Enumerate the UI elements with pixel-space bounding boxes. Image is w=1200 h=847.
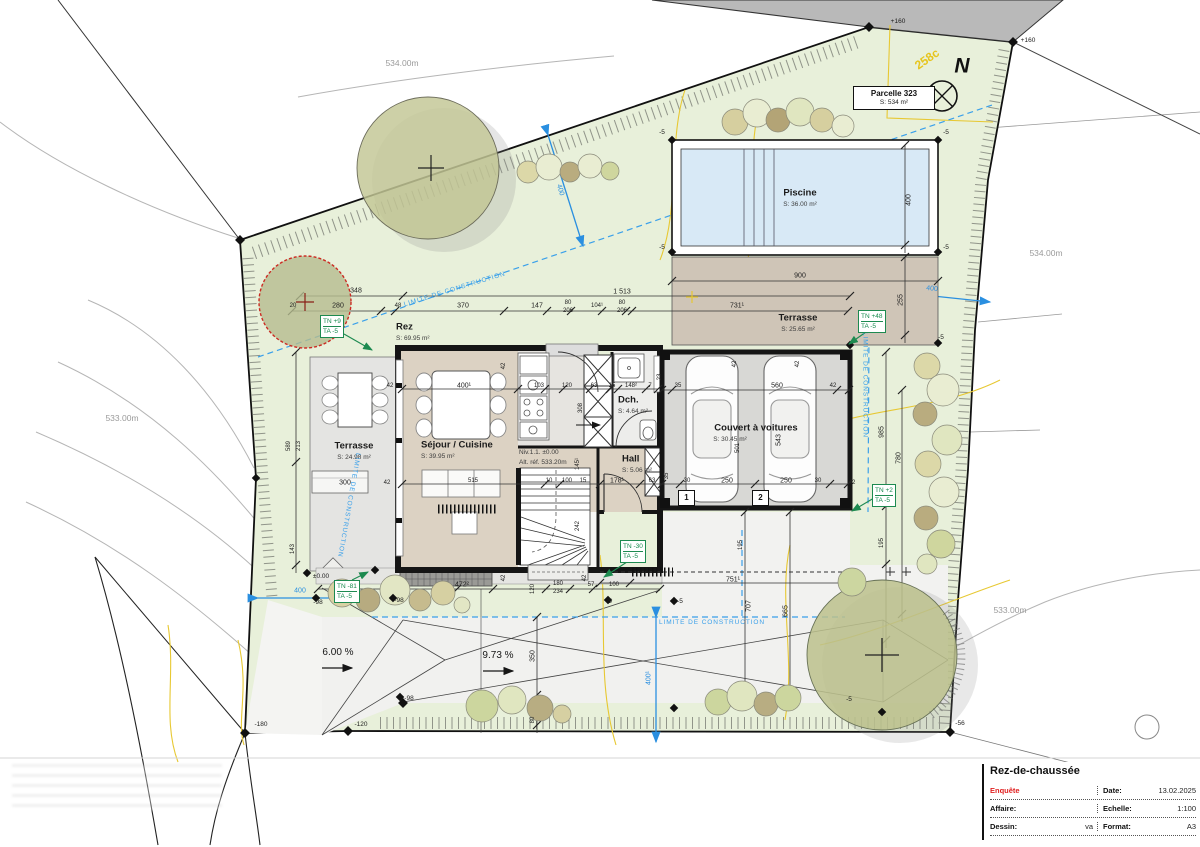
tn-value: TN -30	[623, 542, 643, 551]
drawer-value: va	[1085, 822, 1093, 831]
parcel-info-box: Parcelle 323 S: 534 m²	[853, 86, 935, 110]
ta-value: TA -5	[875, 495, 893, 505]
format-label: Format:	[1103, 822, 1131, 831]
terrace-table	[338, 373, 372, 427]
ta-value: TA -5	[337, 591, 357, 601]
date-value: 13.02.2025	[1158, 786, 1196, 795]
site-plan-drawing	[0, 0, 1200, 847]
drawer-label: Dessin:	[990, 822, 1017, 831]
ta-value: TA -5	[323, 326, 341, 336]
title-block-row: Dessin: va Format: A3	[990, 818, 1196, 836]
terrain-tag: TN +48 TA -5	[858, 310, 886, 333]
staircase	[516, 468, 590, 580]
parking-spot-number: 2	[752, 490, 769, 506]
status-label: Enquête	[990, 786, 1020, 795]
tn-value: TN +48	[861, 312, 883, 321]
parcel-name: Parcelle 323	[854, 89, 934, 98]
car	[686, 356, 738, 502]
dining-table	[416, 371, 506, 439]
parcel-area-value: S: 534 m²	[854, 99, 934, 106]
scale-label: Echelle:	[1103, 804, 1132, 813]
terrain-tag: TN +2 TA -5	[872, 484, 896, 507]
terrain-tag: TN -30 TA -5	[620, 540, 646, 563]
faded-stamp	[12, 764, 222, 810]
tn-value: TN +2	[875, 486, 893, 495]
format-value: A3	[1187, 822, 1196, 831]
date-label: Date:	[1103, 786, 1122, 795]
terrace-sofa	[312, 471, 368, 493]
left-terrace	[310, 357, 398, 586]
scale-value: 1:100	[1177, 804, 1196, 813]
sheet-title: Rez-de-chaussée	[990, 762, 1196, 782]
title-block: Rez-de-chaussée Enquête Date: 13.02.2025…	[975, 762, 1198, 842]
title-block-bar	[982, 764, 984, 840]
kitchen-counter	[518, 353, 549, 440]
ta-value: TA -5	[623, 551, 643, 561]
title-block-row: Enquête Date: 13.02.2025	[990, 782, 1196, 800]
project-label: Affaire:	[990, 804, 1016, 813]
terrain-tag: TN -81 TA -5	[334, 580, 360, 603]
terrain-tag: TN +9 TA -5	[320, 315, 344, 338]
tn-value: TN +9	[323, 317, 341, 326]
ta-value: TA -5	[861, 321, 883, 331]
tn-value: TN -81	[337, 582, 357, 591]
title-block-row: Affaire: Echelle: 1:100	[990, 800, 1196, 818]
pool	[672, 140, 938, 255]
parking-spot-number: 1	[678, 490, 695, 506]
car	[764, 356, 816, 502]
pool-terrace	[672, 257, 938, 345]
site-plan-sheet: 534.00m534.00m533.00m533.00m+160+160258c…	[0, 0, 1200, 847]
